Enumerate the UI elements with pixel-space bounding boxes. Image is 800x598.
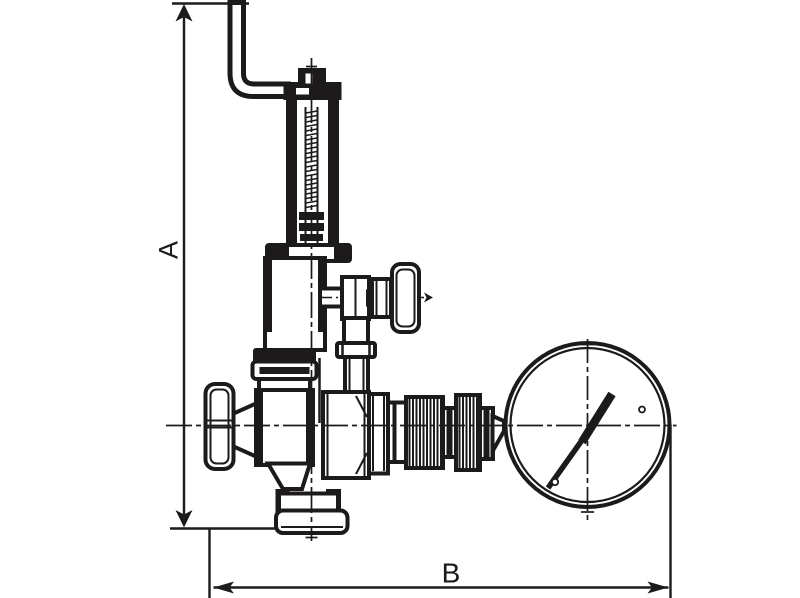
svg-text:A: A [154,241,184,259]
svg-text:B: B [442,558,461,589]
